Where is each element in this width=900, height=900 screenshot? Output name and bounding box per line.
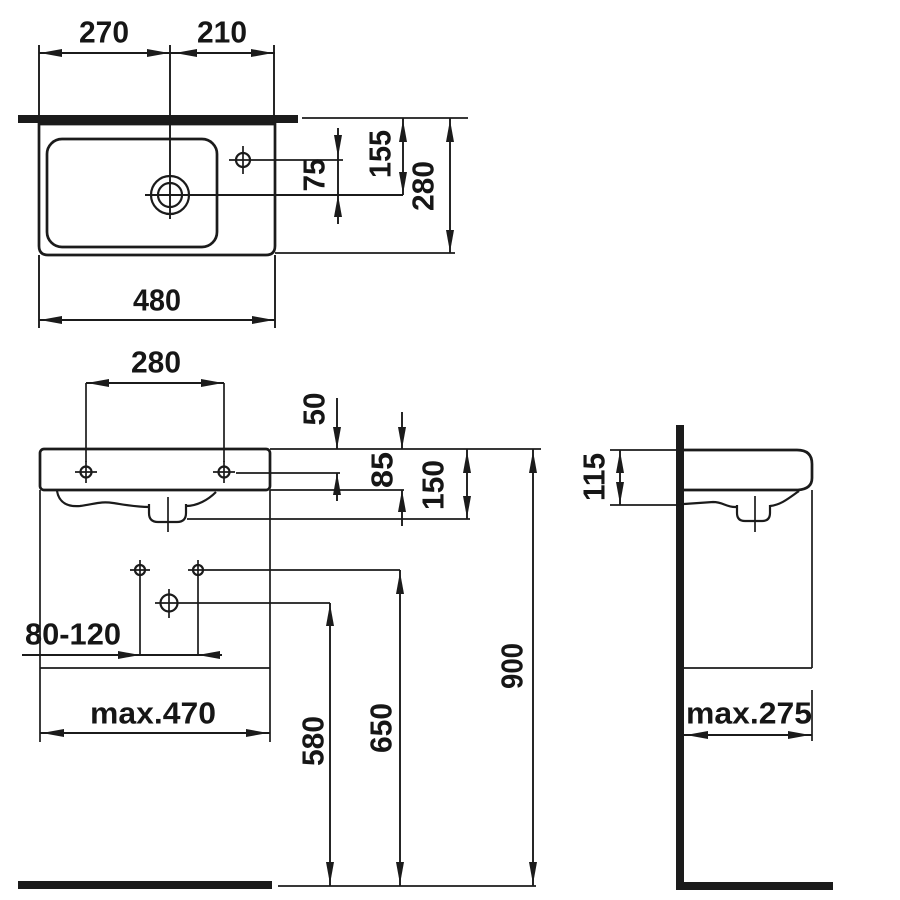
basin-bowl-outline bbox=[47, 139, 217, 247]
dim-210: 210 bbox=[197, 15, 247, 50]
fixing-bolts bbox=[130, 560, 400, 655]
bowl-underside-side-right bbox=[770, 491, 799, 506]
dim-270: 270 bbox=[79, 15, 129, 50]
dim-115: 115 bbox=[577, 453, 612, 501]
dim-580: 580 bbox=[296, 716, 331, 766]
washbasin-dimension-drawing: 270 210 75 155 280 480 280 bbox=[0, 0, 900, 900]
bowl-underside-curve-right bbox=[186, 492, 216, 506]
technical-drawing-page: 270 210 75 155 280 480 280 bbox=[0, 0, 900, 900]
dim-650: 650 bbox=[364, 703, 399, 753]
dim-480: 480 bbox=[133, 283, 181, 318]
basin-outer-outline bbox=[39, 124, 275, 255]
basin-body-front bbox=[40, 449, 270, 490]
dim-280-front: 280 bbox=[131, 345, 181, 380]
dim-max470: max.470 bbox=[90, 696, 216, 731]
dim-85: 85 bbox=[365, 452, 400, 488]
drain-outlet-symbol bbox=[155, 589, 330, 618]
dim-max275: max.275 bbox=[686, 696, 812, 731]
floor-line-side-view bbox=[676, 882, 833, 890]
drain-trap-side bbox=[737, 505, 770, 521]
front-view: 280 50 85 150 bbox=[18, 345, 541, 890]
dim-155: 155 bbox=[363, 130, 398, 178]
wall-fixing-holes bbox=[75, 461, 235, 483]
basin-profile-side bbox=[684, 450, 812, 490]
dim-75: 75 bbox=[297, 159, 332, 192]
floor-line-front-view bbox=[18, 881, 272, 889]
dim-50: 50 bbox=[297, 393, 332, 426]
bowl-underside-side bbox=[684, 502, 737, 507]
wall-line-top-view bbox=[18, 115, 298, 123]
top-view: 270 210 75 155 280 480 bbox=[18, 15, 468, 329]
wall-line-side-view bbox=[676, 425, 684, 890]
dim-900: 900 bbox=[495, 643, 530, 689]
side-view: 115 max.275 bbox=[577, 425, 834, 890]
dim-150: 150 bbox=[416, 460, 451, 510]
bowl-underside-curve bbox=[57, 491, 149, 507]
dim-280-top: 280 bbox=[406, 161, 441, 211]
